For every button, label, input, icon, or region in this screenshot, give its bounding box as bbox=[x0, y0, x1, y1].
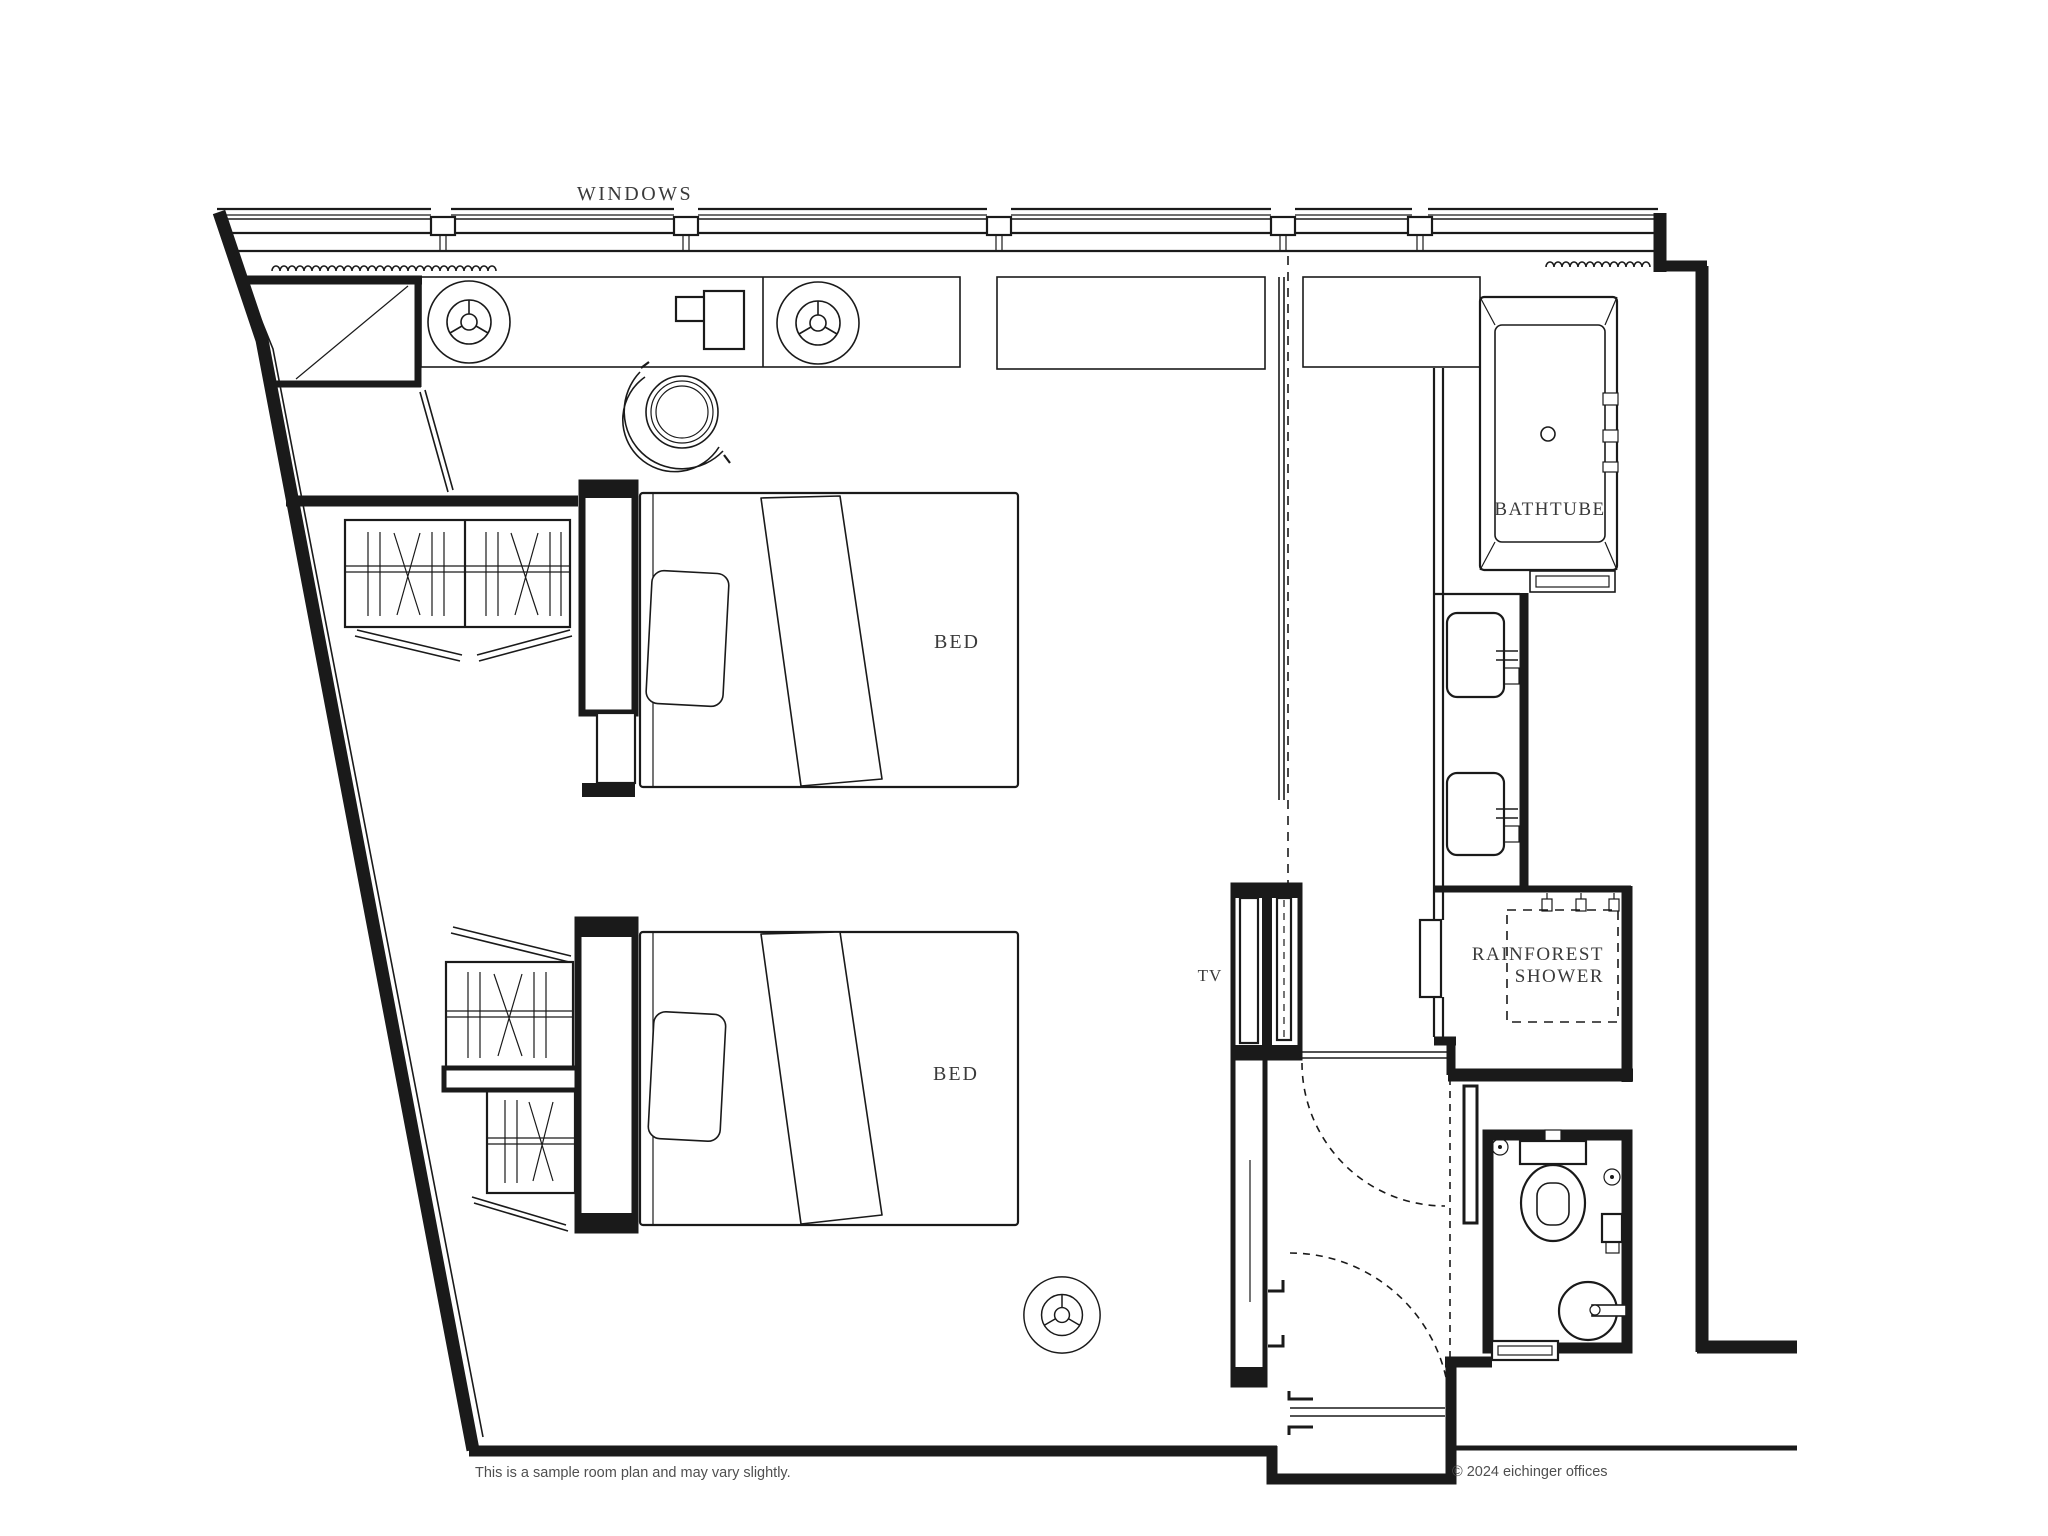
desk-chair bbox=[623, 362, 730, 472]
bed-lower-pillow bbox=[648, 1011, 727, 1142]
wall-below-tv bbox=[1233, 1058, 1283, 1385]
toilet-door-mat bbox=[1492, 1341, 1558, 1360]
shower: RAINFOREST SHOWER bbox=[1434, 886, 1633, 1082]
wardrobe-lower-bay1-hangers bbox=[468, 972, 546, 1058]
bed-lower: BED bbox=[640, 932, 1018, 1225]
partition bbox=[1279, 256, 1288, 883]
tv-screen bbox=[1240, 898, 1258, 1043]
disclaimer-text: This is a sample room plan and may vary … bbox=[475, 1465, 791, 1481]
bathtub: BATHTUBE bbox=[1480, 297, 1618, 592]
entry-vestibule-walls bbox=[1272, 1360, 1451, 1479]
entry-door-swing bbox=[1290, 1253, 1450, 1413]
wardrobe-upper-doors bbox=[355, 630, 572, 661]
floor-plan-page: BED BED TV bbox=[0, 0, 2048, 1536]
wardrobe-upper bbox=[286, 501, 578, 661]
bed-upper-pillow bbox=[646, 570, 730, 707]
window-band bbox=[217, 209, 1658, 251]
bathroom-door-swing bbox=[1302, 1063, 1445, 1206]
vanity-sink-1 bbox=[1447, 613, 1504, 697]
bed-upper-label: BED bbox=[934, 631, 980, 653]
window-mullion bbox=[1408, 217, 1432, 235]
shower-label-1: RAINFOREST bbox=[1472, 944, 1604, 965]
wardrobe-lower-bottom-door bbox=[472, 1197, 568, 1231]
bathtub-label: BATHTUBE bbox=[1494, 499, 1605, 520]
toilet-room bbox=[1488, 1130, 1627, 1360]
tv-label: TV bbox=[1198, 966, 1223, 985]
bed-upper: BED bbox=[640, 493, 1018, 787]
wardrobe-lower-top-door bbox=[451, 927, 571, 962]
wall-hooks bbox=[1268, 1280, 1283, 1346]
window-mullion bbox=[431, 217, 455, 235]
mullion-ticks bbox=[440, 235, 1423, 251]
bed-upper-blanket bbox=[761, 496, 882, 786]
window-mullion bbox=[987, 217, 1011, 235]
toilet-bowl bbox=[1521, 1165, 1585, 1241]
window-mullion bbox=[674, 217, 698, 235]
bathroom-left-wall bbox=[1420, 368, 1456, 1075]
desk-counter bbox=[421, 277, 1480, 369]
bed-lower-label: BED bbox=[933, 1063, 979, 1085]
wardrobe-lower-divider bbox=[444, 1068, 578, 1090]
nightstand-upper bbox=[597, 713, 635, 783]
door-leaf bbox=[1464, 1086, 1477, 1223]
paper-holder bbox=[1602, 1214, 1622, 1242]
vanity-sink-2 bbox=[1447, 773, 1504, 855]
radiator-zigzag-left bbox=[272, 266, 496, 271]
window-mullion bbox=[1271, 217, 1295, 235]
radiator-zigzag-right bbox=[1546, 262, 1650, 267]
wardrobe-lower-bay2-hangers bbox=[505, 1100, 553, 1183]
shower-heads bbox=[1542, 893, 1619, 911]
headboard-upper bbox=[579, 483, 638, 797]
toilet-tank bbox=[1520, 1141, 1586, 1164]
headboard-lower bbox=[575, 920, 638, 1230]
stool-3 bbox=[1024, 1277, 1100, 1353]
copyright-text: © 2024 eichinger offices bbox=[1452, 1464, 1608, 1480]
bathtub-step bbox=[1530, 571, 1615, 592]
floor-plan-drawing: BED BED TV bbox=[0, 0, 2048, 1536]
shower-label-2: SHOWER bbox=[1515, 966, 1604, 987]
left-slanted-wall bbox=[219, 212, 473, 1450]
wardrobe-lower-bay2 bbox=[487, 1090, 575, 1193]
stool-2 bbox=[777, 282, 859, 364]
outer-walls bbox=[219, 212, 1797, 1479]
wardrobe-lower bbox=[444, 927, 578, 1231]
desk-phone bbox=[676, 291, 744, 349]
wardrobe-upper-rail bbox=[345, 566, 570, 572]
leaning-mirror bbox=[420, 390, 453, 492]
entry-door-threshold bbox=[1290, 1408, 1445, 1416]
entry-hooks bbox=[1289, 1391, 1313, 1435]
bed-lower-blanket bbox=[761, 932, 882, 1224]
closet-diagonal bbox=[296, 286, 408, 379]
bathroom-niche bbox=[1420, 920, 1441, 997]
windows-label: WINDOWS bbox=[577, 183, 693, 205]
stool-1 bbox=[428, 281, 510, 363]
vanity bbox=[1434, 593, 1524, 889]
bathroom-door-closed bbox=[1300, 1052, 1448, 1058]
cabinet-section-4 bbox=[1303, 277, 1480, 367]
desk-section-3 bbox=[997, 277, 1265, 369]
tv-unit: TV bbox=[1198, 885, 1300, 1058]
radiators bbox=[272, 262, 1650, 271]
bathtub-drain bbox=[1541, 427, 1555, 441]
